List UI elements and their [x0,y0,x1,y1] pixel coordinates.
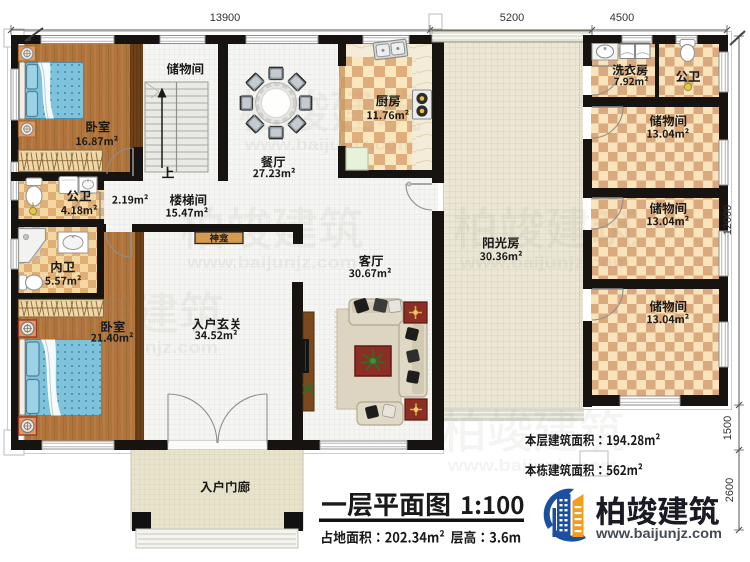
svg-text:4500: 4500 [610,12,634,24]
svg-text:www.baijunjz.com: www.baijunjz.com [186,253,357,272]
svg-text:1500: 1500 [722,416,734,440]
svg-text:2600: 2600 [724,478,736,502]
svg-text:12000: 12000 [722,205,734,236]
svg-text:13900: 13900 [210,12,241,24]
svg-text:www.baijunjz.com: www.baijunjz.com [595,525,722,541]
svg-text:www.baijunjz.com: www.baijunjz.com [459,253,630,272]
svg-text:5200: 5200 [500,12,524,24]
